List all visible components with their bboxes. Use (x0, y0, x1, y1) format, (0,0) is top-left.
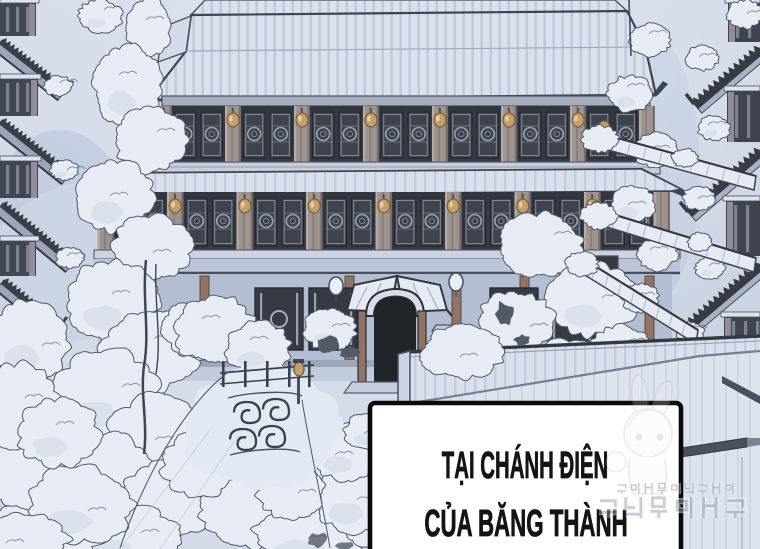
svg-text:CỦA BĂNG THÀNH: CỦA BĂNG THÀNH (424, 501, 627, 545)
svg-text:TẠI CHÁNH ĐIỆN: TẠI CHÁNH ĐIỆN (442, 444, 608, 486)
